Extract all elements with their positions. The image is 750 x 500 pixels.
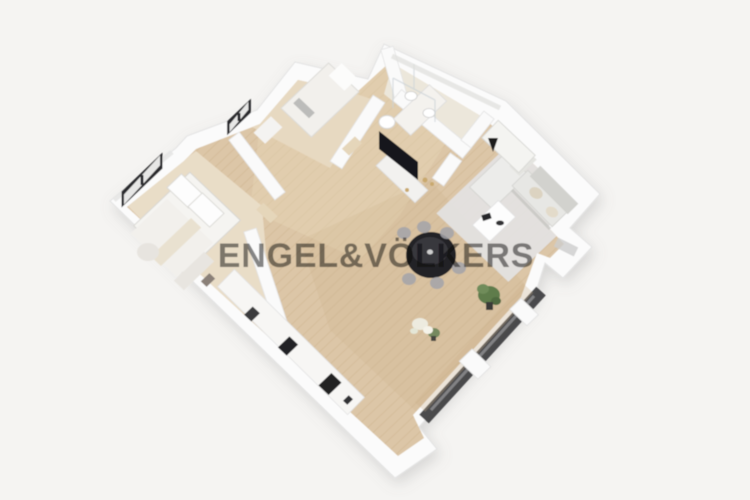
svg-text:ENGEL&VÖLKERS: ENGEL&VÖLKERS [218, 237, 534, 275]
